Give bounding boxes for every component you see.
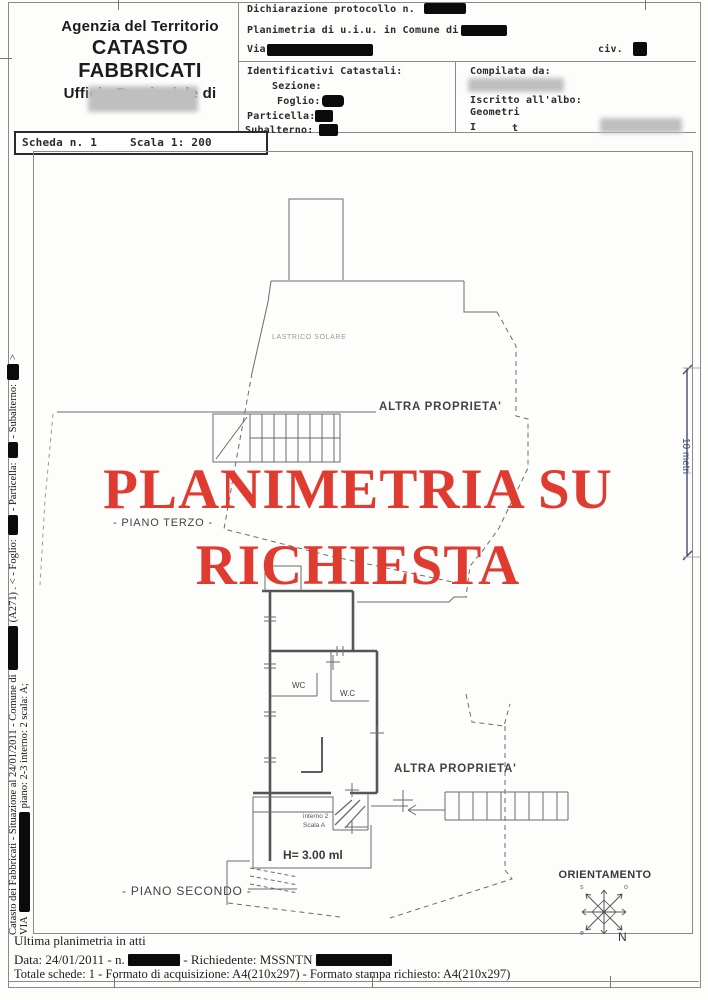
footer-line1: Ultima planimetria in atti — [14, 933, 146, 949]
scala-a-label: Scala A — [303, 822, 325, 829]
watermark-line1: PLANIMETRIA SU — [28, 452, 688, 528]
orientamento-label: ORIENTAMENTO — [550, 869, 660, 881]
sidebar-metadata-line1: Catasto dei Fabbricati - Situazione al 2… — [7, 354, 19, 935]
compass-e-letter: e — [580, 930, 584, 937]
footer-line2: Data: 24/01/2011 - n. - Richiedente: MSS… — [14, 952, 392, 968]
watermark-line2: RICHIESTA — [28, 528, 688, 604]
sidebar-redacted — [8, 515, 18, 535]
sidebar-redacted — [8, 626, 18, 670]
sidebar-text: Catasto dei Fabbricati - Situazione al 2… — [8, 674, 19, 935]
sidebar-text: - Subalterno: — [8, 384, 19, 439]
sidebar-text: > — [8, 354, 19, 360]
piano-secondo-label: - PIANO SECONDO - — [122, 884, 252, 898]
sidebar-redacted — [8, 442, 18, 458]
lastrico-solare-label: LASTRICO SOLARE — [272, 334, 346, 341]
compass-north-label: N — [618, 930, 627, 944]
height-label: H= 3.00 ml — [283, 848, 343, 862]
compass-s-letter: s — [580, 884, 584, 891]
sidebar-redacted — [19, 812, 30, 912]
sidebar-text: piano: 2-3 interno: 2 scala: A; — [19, 683, 30, 808]
altra-proprieta-lower-label: ALTRA PROPRIETA' — [394, 763, 517, 775]
footer-richiedente-text: - Richiedente: MSSNTN — [183, 952, 312, 967]
sidebar-redacted — [7, 364, 19, 380]
interno-label: interno 2 — [303, 813, 328, 820]
footer-name-redacted — [316, 954, 392, 966]
sidebar-text: (A271) . < - Foglio: — [8, 539, 19, 622]
altra-proprieta-upper-label: ALTRA PROPRIETA' — [379, 401, 502, 413]
watermark: PLANIMETRIA SU RICHIESTA — [28, 452, 688, 604]
footer-number-redacted — [128, 954, 180, 966]
compass-o-letter: o — [624, 884, 628, 891]
cadastral-plan-scan: Agenzia del Territorio CATASTO FABBRICAT… — [0, 0, 708, 1000]
wc2-label: W.C — [340, 689, 355, 698]
footer-line3: Totale schede: 1 - Formato di acquisizio… — [14, 967, 510, 982]
sidebar-metadata-line2: VIA piano: 2-3 interno: 2 scala: A; — [19, 683, 30, 935]
sidebar-text: - Particella: — [8, 462, 19, 511]
footer-date-text: Data: 24/01/2011 - n. — [14, 952, 125, 967]
wc-label: WC — [292, 681, 305, 690]
